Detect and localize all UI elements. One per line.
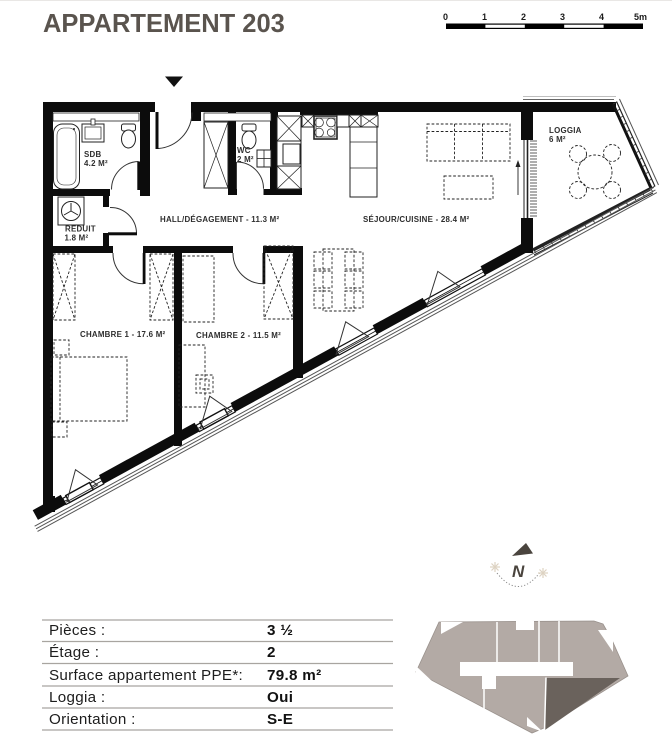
svg-text:1: 1	[482, 12, 487, 22]
svg-text:Pièces :: Pièces :	[49, 622, 105, 639]
svg-text:LOGGIA: LOGGIA	[549, 126, 582, 135]
svg-text:REDUIT: REDUIT	[65, 225, 96, 234]
svg-text:Étage :: Étage :	[49, 644, 99, 661]
svg-text:3 ½: 3 ½	[267, 622, 293, 639]
svg-text:SDB: SDB	[84, 150, 101, 159]
svg-text:Surface appartement PPE*:: Surface appartement PPE*:	[49, 667, 243, 684]
svg-text:HALL/DÉGAGEMENT - 11.3 M²: HALL/DÉGAGEMENT - 11.3 M²	[160, 215, 279, 224]
svg-text:CHAMBRE 1 - 17.6 M²: CHAMBRE 1 - 17.6 M²	[80, 330, 166, 339]
svg-text:2 M²: 2 M²	[237, 155, 254, 164]
svg-text:0: 0	[443, 12, 448, 22]
svg-text:N: N	[512, 562, 525, 581]
svg-text:4: 4	[599, 12, 604, 22]
svg-text:WC: WC	[237, 146, 251, 155]
svg-text:S-E: S-E	[267, 711, 293, 728]
svg-text:Orientation :: Orientation :	[49, 711, 136, 728]
svg-text:Oui: Oui	[267, 689, 293, 706]
svg-text:2: 2	[267, 644, 276, 661]
svg-text:APPARTEMENT 203: APPARTEMENT 203	[43, 10, 285, 38]
svg-text:SÉJOUR/CUISINE - 28.4 M²: SÉJOUR/CUISINE - 28.4 M²	[363, 215, 470, 224]
svg-text:79.8 m²: 79.8 m²	[267, 667, 321, 684]
svg-text:4.2 M²: 4.2 M²	[84, 159, 108, 168]
svg-text:3: 3	[560, 12, 565, 22]
svg-text:6 M²: 6 M²	[549, 135, 566, 144]
svg-text:CHAMBRE 2 - 11.5 M²: CHAMBRE 2 - 11.5 M²	[196, 331, 281, 340]
svg-text:5m: 5m	[634, 12, 647, 22]
svg-text:2: 2	[521, 12, 526, 22]
svg-text:Loggia :: Loggia :	[49, 689, 105, 706]
svg-text:1.8 M²: 1.8 M²	[65, 234, 89, 243]
